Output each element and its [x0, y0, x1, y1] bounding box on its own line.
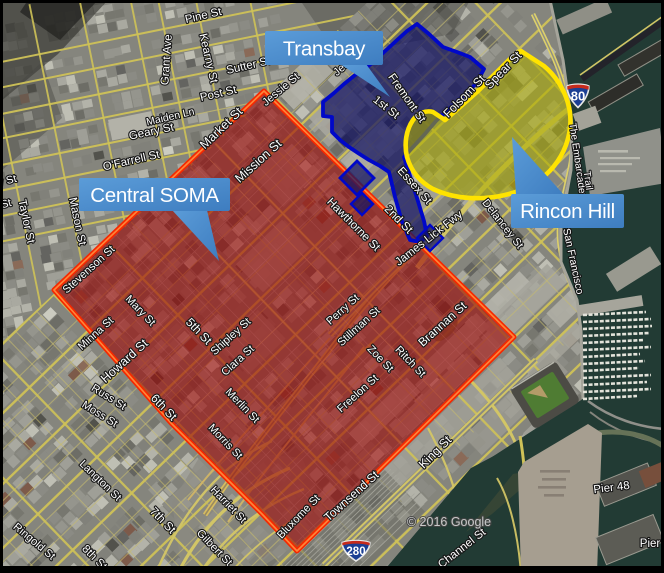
svg-text:© 2016 Google: © 2016 Google — [407, 515, 491, 529]
svg-text:Rincon Hill: Rincon Hill — [520, 200, 615, 223]
svg-text:Central SOMA: Central SOMA — [90, 184, 219, 207]
svg-text:Pier: Pier — [640, 538, 661, 550]
svg-text:280: 280 — [346, 546, 365, 558]
svg-text:Transbay: Transbay — [283, 38, 366, 61]
svg-text:80: 80 — [571, 89, 585, 104]
